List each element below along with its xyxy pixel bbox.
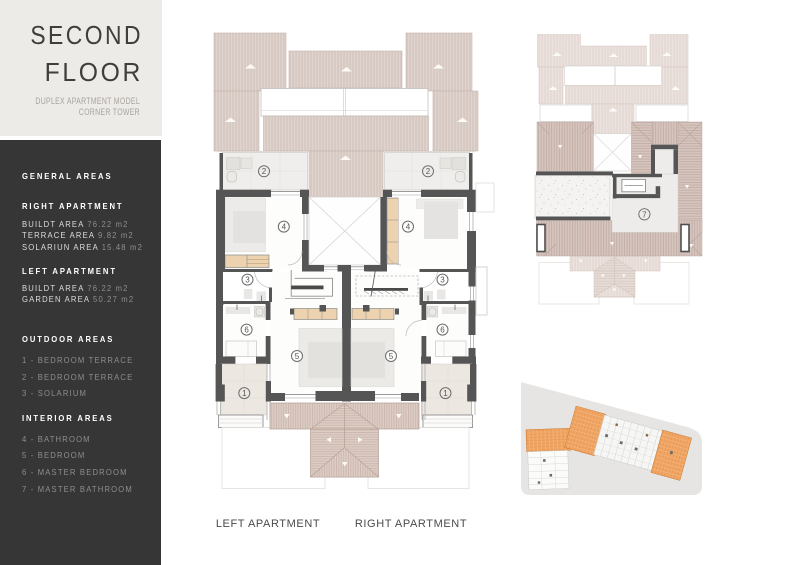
svg-text:2: 2 [262,167,267,176]
svg-text:3: 3 [440,276,445,285]
svg-text:7: 7 [642,210,647,219]
svg-text:2: 2 [426,167,431,176]
svg-text:6: 6 [244,326,249,335]
svg-text:1: 1 [242,389,247,398]
svg-text:5: 5 [389,352,394,361]
svg-text:5: 5 [295,352,300,361]
svg-text:4: 4 [282,223,287,232]
svg-text:4: 4 [406,223,411,232]
svg-text:6: 6 [440,326,445,335]
svg-text:3: 3 [245,276,250,285]
svg-text:1: 1 [443,389,448,398]
